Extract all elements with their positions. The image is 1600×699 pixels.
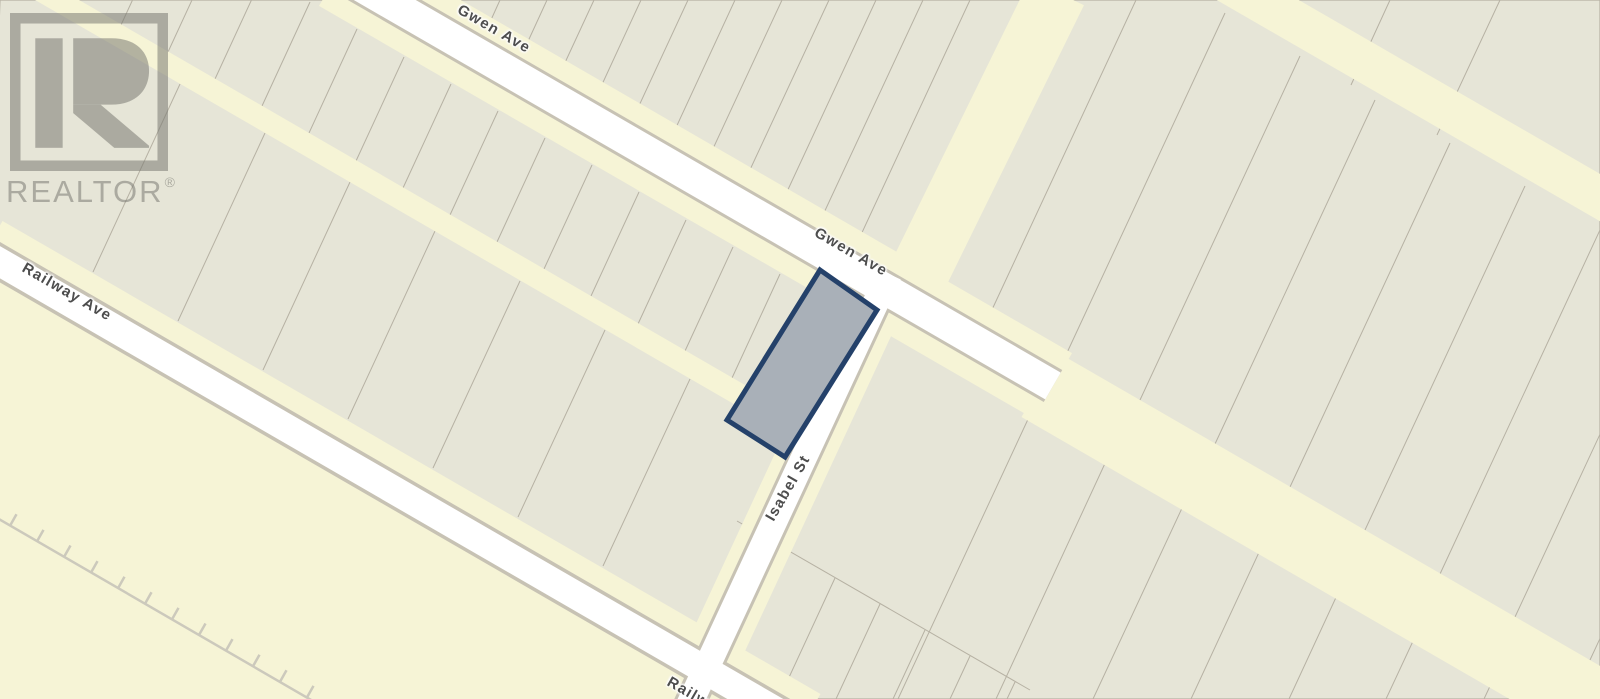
registered-trademark-icon: ®	[165, 175, 175, 189]
map-view[interactable]: Gwen AveGwen AveRailway AveIsabel StRail…	[0, 0, 1600, 699]
realtor-logo-icon	[10, 12, 168, 172]
realtor-wordmark: REALTOR	[6, 176, 164, 207]
realtor-watermark: REALTOR ®	[6, 8, 196, 218]
map-canvas	[0, 0, 1600, 699]
